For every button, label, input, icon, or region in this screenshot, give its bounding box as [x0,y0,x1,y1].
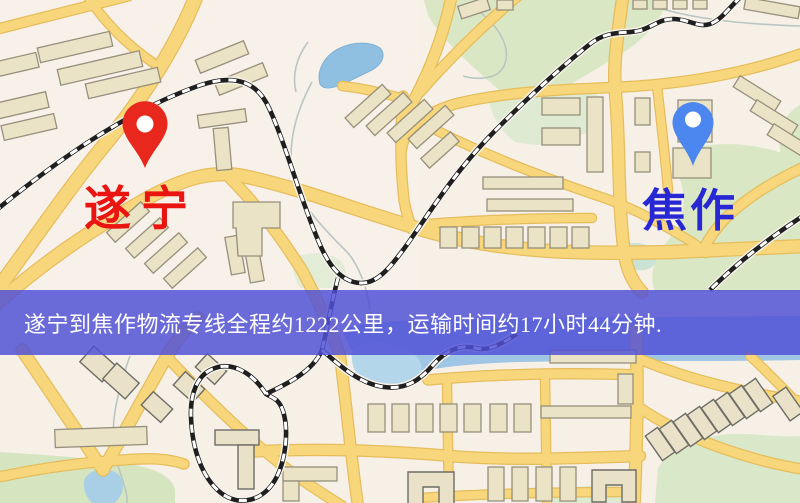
map-background [0,0,800,503]
origin-marker-icon[interactable] [115,97,175,171]
route-info-banner: 遂宁到焦作物流专线全程约1222公里，运输时间约17小时44分钟. [0,290,800,355]
destination-city-label: 焦作 [642,174,738,239]
destination-marker-icon[interactable] [668,96,718,168]
route-info-text: 遂宁到焦作物流专线全程约1222公里，运输时间约17小时44分钟. [24,307,662,339]
origin-city-label: 遂宁 [84,170,198,239]
map-viewport: 遂宁 焦作 遂宁到焦作物流专线全程约1222公里，运输时间约17小时44分钟. [0,0,800,503]
